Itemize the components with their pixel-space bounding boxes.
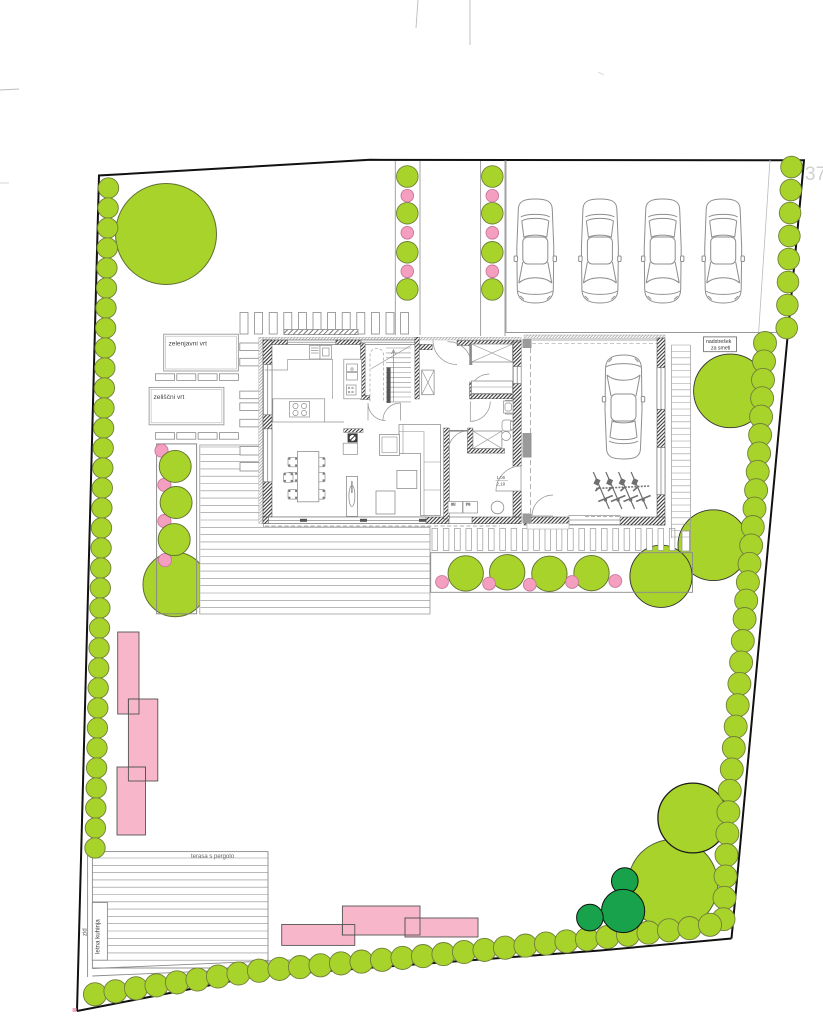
- svg-text:za smeti: za smeti: [711, 346, 730, 352]
- svg-text:zelenjavni vrt: zelenjavni vrt: [169, 341, 208, 348]
- svg-text:2,19: 2,19: [497, 482, 506, 487]
- svg-text:zeliščni vrt: zeliščni vrt: [154, 394, 185, 401]
- svg-text:terasa s pergolo: terasa s pergolo: [191, 854, 235, 860]
- svg-text:PS: PS: [466, 503, 470, 507]
- svg-text:letna kuhinja: letna kuhinja: [95, 919, 102, 954]
- svg-text:1,06: 1,06: [497, 475, 506, 480]
- svg-text:nadstrešek: nadstrešek: [706, 339, 732, 345]
- svg-text:zid: zid: [83, 928, 89, 936]
- svg-text:37,: 37,: [805, 164, 823, 185]
- svg-text:SU: SU: [451, 503, 456, 507]
